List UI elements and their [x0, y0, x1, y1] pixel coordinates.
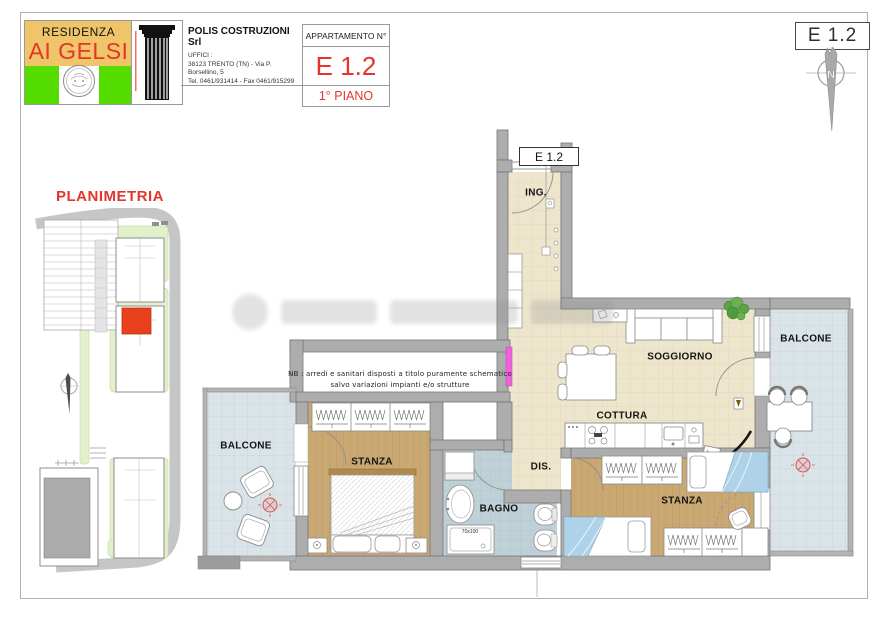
kitchen-counter: [565, 423, 703, 448]
dining-table: [558, 346, 616, 400]
room-label-balcone-right: BALCONE: [780, 334, 832, 345]
wall-lamp: [734, 398, 743, 409]
plan-sheet: RESIDENZA AI GELSI POLIS COSTRUZIONI Srl…: [0, 0, 880, 622]
doric-column-icon: [131, 20, 183, 105]
company-name: POLIS COSTRUZIONI Srl: [188, 26, 300, 48]
svg-text:N: N: [827, 69, 835, 81]
north-compass-icon: N: [804, 45, 858, 137]
room-label-ing: ING.: [525, 188, 547, 199]
site-parking: [44, 220, 118, 332]
residence-logo: RESIDENZA AI GELSI: [24, 20, 133, 105]
header-divider: [181, 85, 302, 86]
sofa: [626, 309, 722, 343]
room-label-stanza-left: STANZA: [351, 457, 393, 468]
seal-emblem-icon: [61, 61, 97, 101]
apartment-number: E 1.2: [303, 47, 389, 86]
room-label-bagno: BAGNO: [480, 504, 519, 515]
room-label-stanza-right: STANZA: [661, 496, 703, 507]
room-label-balcone-left: BALCONE: [220, 441, 272, 452]
company-address: 38123 TRENTO (TN) - Via P. Borsellino, 5: [188, 61, 300, 78]
room-label-dis: DIS.: [531, 462, 552, 473]
residence-word: RESIDENZA: [25, 25, 132, 39]
plan-note: NB : arredi e sanitari disposti a titolo…: [288, 369, 512, 391]
company-office: UFFICI :: [188, 52, 300, 61]
company-block: POLIS COSTRUZIONI Srl UFFICI : 38123 TRE…: [188, 26, 300, 86]
plan-note-line1: NB : arredi e sanitari disposti a titolo…: [288, 369, 512, 380]
site-plan-title: PLANIMETRIA: [40, 188, 180, 205]
site-plan: [33, 208, 185, 596]
site-highlighted-unit: [122, 308, 151, 334]
apartment-label: APPARTAMENTO N°: [303, 25, 389, 47]
apartment-number-box: APPARTAMENTO N° E 1.2 1° PIANO: [302, 24, 390, 107]
watermark: [232, 292, 617, 332]
room-label-cottura: COTTURA: [597, 411, 648, 422]
room-label-soggiorno: SOGGIORNO: [647, 352, 712, 363]
shower-size-label: 70x100: [462, 529, 478, 535]
plan-unit-tag: E 1.2: [519, 147, 579, 166]
residence-name: AI GELSI: [25, 38, 132, 65]
apartment-floor: 1° PIANO: [303, 86, 389, 106]
plan-note-line2: salvo variazioni impianti e/o strutture: [288, 380, 512, 391]
site-gray-building: [44, 478, 90, 558]
site-north-arrow-icon: [59, 373, 79, 414]
